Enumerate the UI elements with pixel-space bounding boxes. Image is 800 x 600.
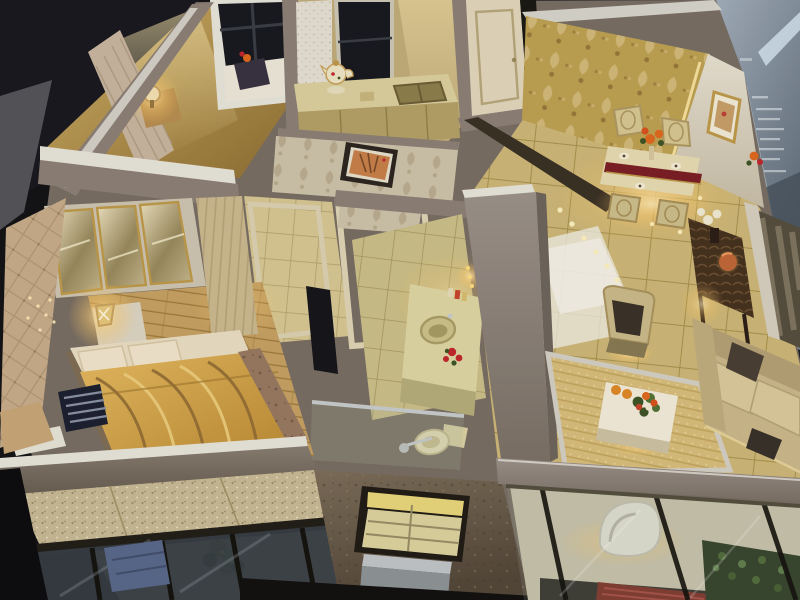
photo-canvas	[0, 0, 800, 600]
vignette	[0, 0, 800, 600]
model-photo	[0, 0, 800, 600]
